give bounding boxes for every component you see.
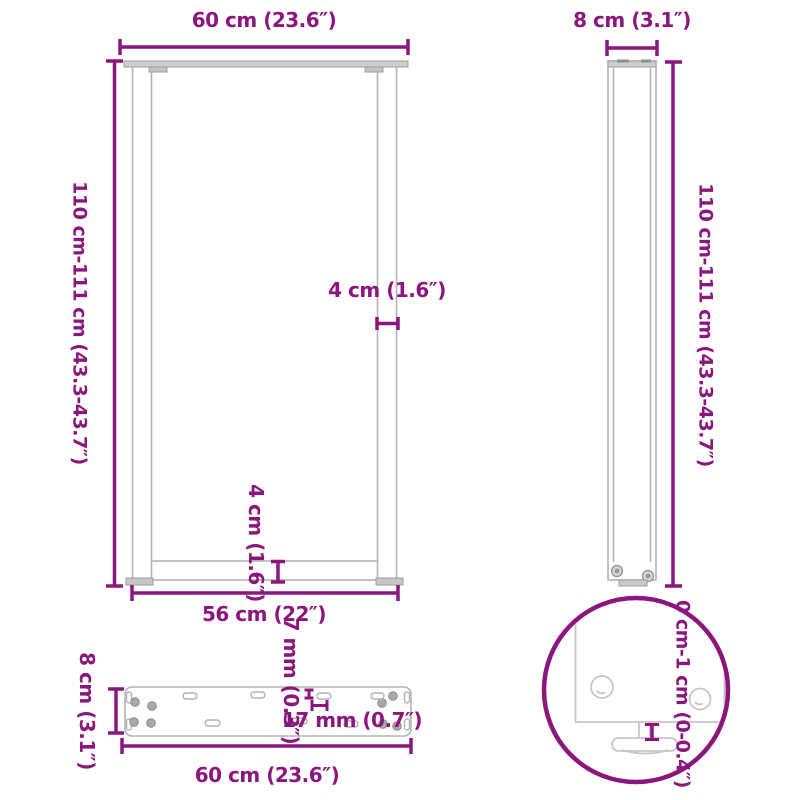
detail-foot-pad <box>612 738 677 751</box>
side-height-label: 110 cm-111 cm (43.3-43.7″) <box>694 183 716 467</box>
plate-slot <box>317 693 331 699</box>
side-depth-label: 8 cm (3.1″) <box>573 8 691 32</box>
front-view: 60 cm (23.6″) 110 cm-111 cm (43.3-43.7″)… <box>68 8 445 626</box>
table-legs-dimension-diagram: 60 cm (23.6″) 110 cm-111 cm (43.3-43.7″)… <box>0 0 800 800</box>
plate-slot <box>371 693 384 699</box>
plate-hole <box>389 692 398 701</box>
front-crossbar-height-dimension: 4 cm (1.6″) <box>244 484 285 602</box>
front-top-width-dimension: 60 cm (23.6″) <box>120 8 408 55</box>
foot-detail-view: 0 cm-1 cm (0-0.4″) <box>544 595 730 788</box>
side-foot <box>619 580 647 586</box>
side-depth-dimension: 8 cm (3.1″) <box>573 8 691 56</box>
plate-width-dimension: 60 cm (23.6″) <box>122 738 411 787</box>
detail-screw-1 <box>591 676 613 698</box>
plate-width-label: 60 cm (23.6″) <box>195 763 340 787</box>
front-top-width-label: 60 cm (23.6″) <box>192 8 337 32</box>
front-height-label: 110 cm-111 cm (43.3-43.7″) <box>68 181 90 465</box>
diagram-canvas: 60 cm (23.6″) 110 cm-111 cm (43.3-43.7″)… <box>0 0 800 800</box>
side-leg-column <box>608 61 656 580</box>
plate-edge-slot <box>405 692 410 703</box>
front-right-foot <box>376 578 403 585</box>
plate-depth-label: 8 cm (3.1″) <box>75 652 99 770</box>
plate-slot <box>205 720 220 726</box>
front-left-foot <box>126 578 153 585</box>
plate-depth-dimension: 8 cm (3.1″) <box>75 652 124 770</box>
plate-hole <box>130 718 139 727</box>
top-plate-view: 8 cm (3.1″) 7 mm (0.3″) 17 mm (0.7″) 60 … <box>75 618 422 787</box>
plate-hole <box>148 702 157 711</box>
side-leg-drawing <box>608 60 656 587</box>
plate-hole <box>147 719 156 728</box>
side-view: 8 cm (3.1″) 110 cm-111 cm (43.3-43.7″) <box>573 8 716 586</box>
front-tube-width-label: 4 cm (1.6″) <box>328 278 446 302</box>
side-top-tab-right <box>641 60 651 63</box>
front-bottom-width-label: 56 cm (22″) <box>202 602 326 626</box>
side-height-dimension: 110 cm-111 cm (43.3-43.7″) <box>665 62 716 586</box>
front-height-dimension: 110 cm-111 cm (43.3-43.7″) <box>68 61 123 586</box>
front-tube-width-dimension: 4 cm (1.6″) <box>328 278 446 330</box>
front-top-plate <box>124 61 408 67</box>
front-crossbar-height-label: 4 cm (1.6″) <box>244 484 268 602</box>
foot-adjustment-label: 0 cm-1 cm (0-0.4″) <box>671 600 693 788</box>
front-left-bracket <box>149 67 167 72</box>
plate-slot <box>183 693 197 699</box>
plate-hole <box>378 699 387 708</box>
side-top-tab-left <box>617 60 629 63</box>
front-right-bracket <box>365 67 383 72</box>
plate-slot <box>251 692 265 698</box>
plate-slot-label: 17 mm (0.7″) <box>282 708 422 732</box>
plate-hole <box>131 698 140 707</box>
